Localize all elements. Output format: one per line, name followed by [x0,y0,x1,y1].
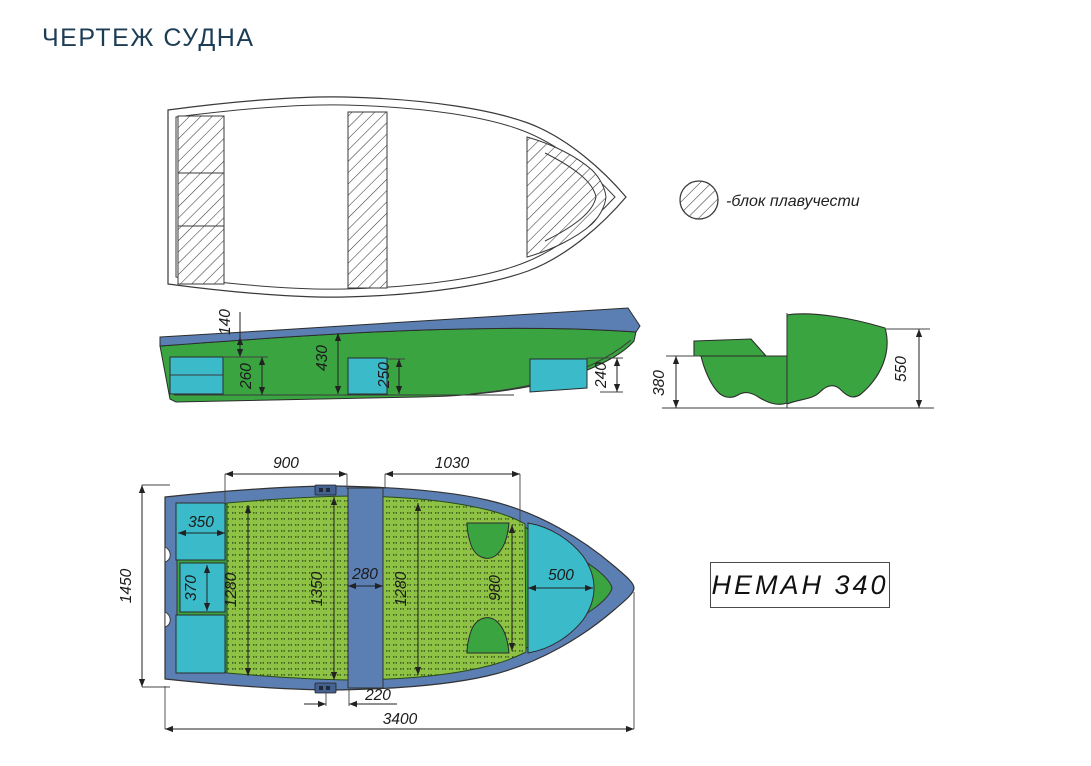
stern-half-section [701,356,787,404]
drawing-sheet: ЧЕРТЕЖ СУДНА -блок плавучести [0,0,1091,766]
legend-label: -блок плавучести [726,193,860,210]
stern-seat-top [176,503,225,560]
dim-overall-beam: 1450 [118,485,170,687]
dim-floor-left-height-label: 1280 [223,572,240,607]
dim-bow-half-height: 550 [886,329,930,408]
model-plate: НЕМАН 340 [710,562,890,608]
top-view [148,85,640,300]
side-view: 140 260 430 250 240 [145,296,655,430]
flotation-block-stern [178,116,224,284]
dim-cockpit-depth-label: 430 [314,345,331,371]
dim-aft-floor-span-label: 1030 [435,455,470,472]
dim-stern-seat-mid-height-label: 370 [183,575,200,601]
page-title: ЧЕРТЕЖ СУДНА [42,24,255,53]
dim-stern-half-height-label: 380 [651,370,668,396]
flotation-block-middle [348,112,387,288]
dim-thwart-offset-label: 220 [364,687,391,704]
dim-thwart-width-label: 280 [351,566,378,583]
dim-bow-seat-width-label: 500 [548,567,574,584]
dim-gunwale-height-label: 140 [217,309,234,335]
dim-bow-seat-height-label: 240 [593,362,610,389]
dim-fore-floor-span-label: 900 [273,455,299,472]
dim-overall-beam-label: 1450 [118,568,135,603]
rowlock-clamp-bottom [315,683,336,693]
dim-bow-floor-height-label: 980 [487,575,504,601]
rowlock-clamp-top [315,485,336,495]
stern-seat-bottom [176,615,225,673]
dim-stern-seat-height-label: 260 [238,363,255,390]
middle-thwart-plan [348,488,383,688]
legend: -блок плавучести [660,162,930,238]
dim-stern-seat-width-label: 350 [188,514,214,531]
stern-seat-side [170,357,223,394]
dim-middle-seat-height-label: 250 [376,362,393,389]
dim-stern-half-height: 380 [651,356,699,408]
bow-half-section [787,314,887,404]
flotation-block-symbol [680,181,718,219]
dim-bow-half-height-label: 550 [893,356,910,382]
model-name: НЕМАН 340 [711,570,888,601]
section-view: 380 550 [648,292,948,424]
stern-bench-section [694,339,766,356]
dim-overall-length-label: 3400 [383,711,418,728]
dim-cockpit-inner-height-label: 1350 [309,571,326,606]
bow-seat-side [530,359,587,392]
dim-bow-seat-height: 240 [587,358,623,392]
flotation-block-bow [527,137,606,257]
dim-floor-right-height-label: 1280 [393,571,410,606]
plan-view: 900 1030 350 370 1280 1350 280 [118,450,666,752]
